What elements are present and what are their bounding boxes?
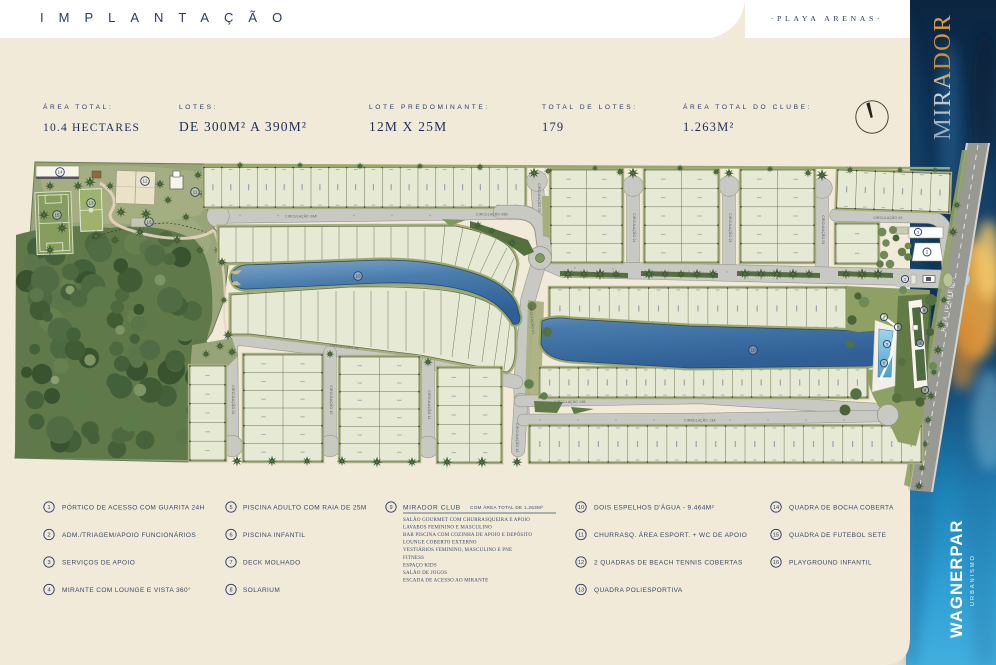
svg-text:CIRCULAÇÃO 09: CIRCULAÇÃO 09 <box>231 385 236 414</box>
svg-text:ÁREA TOTAL:: ÁREA TOTAL: <box>43 102 113 111</box>
svg-text:11: 11 <box>193 190 198 195</box>
svg-text:ALAMEDA DE ACESSO: ALAMEDA DE ACESSO <box>738 275 777 279</box>
svg-text:PISCINA INFANTIL: PISCINA INFANTIL <box>243 532 305 539</box>
svg-text:ESCADA DE ACESSO AO MIRANTE: ESCADA DE ACESSO AO MIRANTE <box>403 578 488 583</box>
svg-text:13: 13 <box>578 588 584 594</box>
svg-text:ÁREA TOTAL DO CLUBE:: ÁREA TOTAL DO CLUBE: <box>683 102 812 111</box>
svg-text:15: 15 <box>773 533 779 539</box>
svg-text:8: 8 <box>229 588 232 594</box>
svg-text:CIRCULAÇÃO 01: CIRCULAÇÃO 01 <box>821 215 826 244</box>
svg-text:QUADRA POLIESPORTIVA: QUADRA POLIESPORTIVA <box>594 587 683 594</box>
svg-text:ADM./TRIAGEM/APOIO FUNCIONÁRIO: ADM./TRIAGEM/APOIO FUNCIONÁRIOS <box>62 530 196 539</box>
svg-text:SALÃO GOURMET COM CHURRASQUEIR: SALÃO GOURMET COM CHURRASQUEIRA E APOIO <box>403 517 530 523</box>
svg-text:VESTIÁRIOS FEMININO, MASCULINO: VESTIÁRIOS FEMININO, MASCULINO E PNE <box>403 547 512 553</box>
svg-text:QUADRA DE BOCHA COBERTA: QUADRA DE BOCHA COBERTA <box>789 504 894 511</box>
svg-text:5: 5 <box>229 505 232 511</box>
svg-text:12: 12 <box>142 179 148 184</box>
svg-text:9: 9 <box>389 505 392 511</box>
svg-text:13: 13 <box>88 201 94 206</box>
svg-text:CIRCULAÇÃO 13A: CIRCULAÇÃO 13A <box>684 418 716 423</box>
svg-text:SALÃO DE JOGOS: SALÃO DE JOGOS <box>403 570 447 576</box>
svg-text:CIRCULAÇÃO 03: CIRCULAÇÃO 03 <box>728 213 733 242</box>
svg-text:4: 4 <box>47 588 50 594</box>
svg-text:15: 15 <box>54 213 60 218</box>
svg-text:179: 179 <box>542 120 564 134</box>
svg-text:MIRANTE COM LOUNGE E VISTA 360: MIRANTE COM LOUNGE E VISTA 360° <box>62 586 191 594</box>
svg-text:DECK MOLHADO: DECK MOLHADO <box>243 559 301 566</box>
svg-text:2: 2 <box>47 533 50 539</box>
svg-text:MIRADOR CLUB: MIRADOR CLUB <box>403 504 461 511</box>
svg-text:QUADRA DE FUTEBOL SETE: QUADRA DE FUTEBOL SETE <box>789 532 887 539</box>
svg-text:16: 16 <box>146 220 152 225</box>
svg-text:IMPLANTAÇÃO: IMPLANTAÇÃO <box>40 10 297 25</box>
svg-text:CIRCULAÇÃO 12: CIRCULAÇÃO 12 <box>515 423 520 452</box>
svg-text:12M X 25M: 12M X 25M <box>369 119 447 134</box>
svg-text:10: 10 <box>750 348 756 353</box>
svg-text:PÓRTICO DE ACESSO COM GUARITA: PÓRTICO DE ACESSO COM GUARITA 24H <box>62 502 205 511</box>
svg-text:COM ÁREA TOTAL DE 1.263M²: COM ÁREA TOTAL DE 1.263M² <box>470 504 543 510</box>
svg-text:14: 14 <box>57 170 63 175</box>
svg-text:LOUNGE COBERTO EXTERNO: LOUNGE COBERTO EXTERNO <box>403 541 477 546</box>
svg-text:11: 11 <box>578 533 584 539</box>
svg-text:CIRCULAÇÃO 04: CIRCULAÇÃO 04 <box>632 213 637 242</box>
svg-text:LOTE PREDOMINANTE:: LOTE PREDOMINANTE: <box>369 104 490 111</box>
svg-text:PISCINA ADULTO COM RAIA DE 25M: PISCINA ADULTO COM RAIA DE 25M <box>243 504 367 511</box>
svg-text:7: 7 <box>229 560 232 566</box>
svg-text:ESPAÇO KIDS: ESPAÇO KIDS <box>403 563 437 568</box>
svg-text:SOLARIUM: SOLARIUM <box>243 587 280 594</box>
svg-text:CIRCULAÇÃO 06B: CIRCULAÇÃO 06B <box>476 212 508 217</box>
svg-text:CIRCULAÇÃO 06A: CIRCULAÇÃO 06A <box>285 214 317 219</box>
svg-text:10.4 HECTARES: 10.4 HECTARES <box>43 122 140 134</box>
svg-text:CIRCULAÇÃO 11: CIRCULAÇÃO 11 <box>427 391 432 420</box>
svg-text:14: 14 <box>773 505 779 511</box>
svg-text:SERVIÇOS DE APOIO: SERVIÇOS DE APOIO <box>62 559 135 566</box>
svg-text:WAGNERPAR: WAGNERPAR <box>948 519 966 638</box>
svg-text:CIRCULAÇÃO 10: CIRCULAÇÃO 10 <box>329 385 334 414</box>
svg-text:LAVABOS FEMININO E MASCULINO: LAVABOS FEMININO E MASCULINO <box>403 526 492 531</box>
svg-text:1.263M²: 1.263M² <box>683 120 734 134</box>
svg-text:FITNESS: FITNESS <box>403 556 424 561</box>
svg-text:BAR PISCINA COM COZINHA DE APO: BAR PISCINA COM COZINHA DE APOIO E DEPÓS… <box>403 532 532 538</box>
svg-text:MIRADOR: MIRADOR <box>929 14 956 140</box>
svg-text:CIRCULAÇÃO 05: CIRCULAÇÃO 05 <box>537 183 542 212</box>
svg-text:TOTAL DE LOTES:: TOTAL DE LOTES: <box>542 104 638 111</box>
svg-text:10: 10 <box>355 274 361 279</box>
svg-text:CIRCULAÇÃO 02: CIRCULAÇÃO 02 <box>873 215 902 220</box>
svg-text:16: 16 <box>773 560 779 566</box>
svg-text:3: 3 <box>47 560 50 566</box>
svg-text:10: 10 <box>578 505 584 511</box>
svg-text:2 QUADRAS DE BEACH TENNIS COBE: 2 QUADRAS DE BEACH TENNIS COBERTAS <box>594 559 743 566</box>
svg-text:LOTES:: LOTES: <box>179 104 218 111</box>
svg-text:PLAYGROUND INFANTIL: PLAYGROUND INFANTIL <box>789 559 872 566</box>
svg-text:DOIS ESPELHOS D'ÁGUA - 9.464M²: DOIS ESPELHOS D'ÁGUA - 9.464M² <box>594 502 715 511</box>
svg-text:6: 6 <box>229 533 232 539</box>
svg-text:CHURRASQ. ÁREA ESPORT. + WC DE: CHURRASQ. ÁREA ESPORT. + WC DE APOIO <box>594 530 747 539</box>
svg-text:·PLAYA ARENAS·: ·PLAYA ARENAS· <box>771 14 883 23</box>
svg-text:1: 1 <box>47 505 50 511</box>
svg-text:12: 12 <box>578 560 584 566</box>
svg-text:DE 300M² A 390M²: DE 300M² A 390M² <box>179 119 307 134</box>
svg-text:CIRCULAÇÃO 13B: CIRCULAÇÃO 13B <box>554 399 586 404</box>
svg-text:URBANISMO: URBANISMO <box>970 554 976 606</box>
